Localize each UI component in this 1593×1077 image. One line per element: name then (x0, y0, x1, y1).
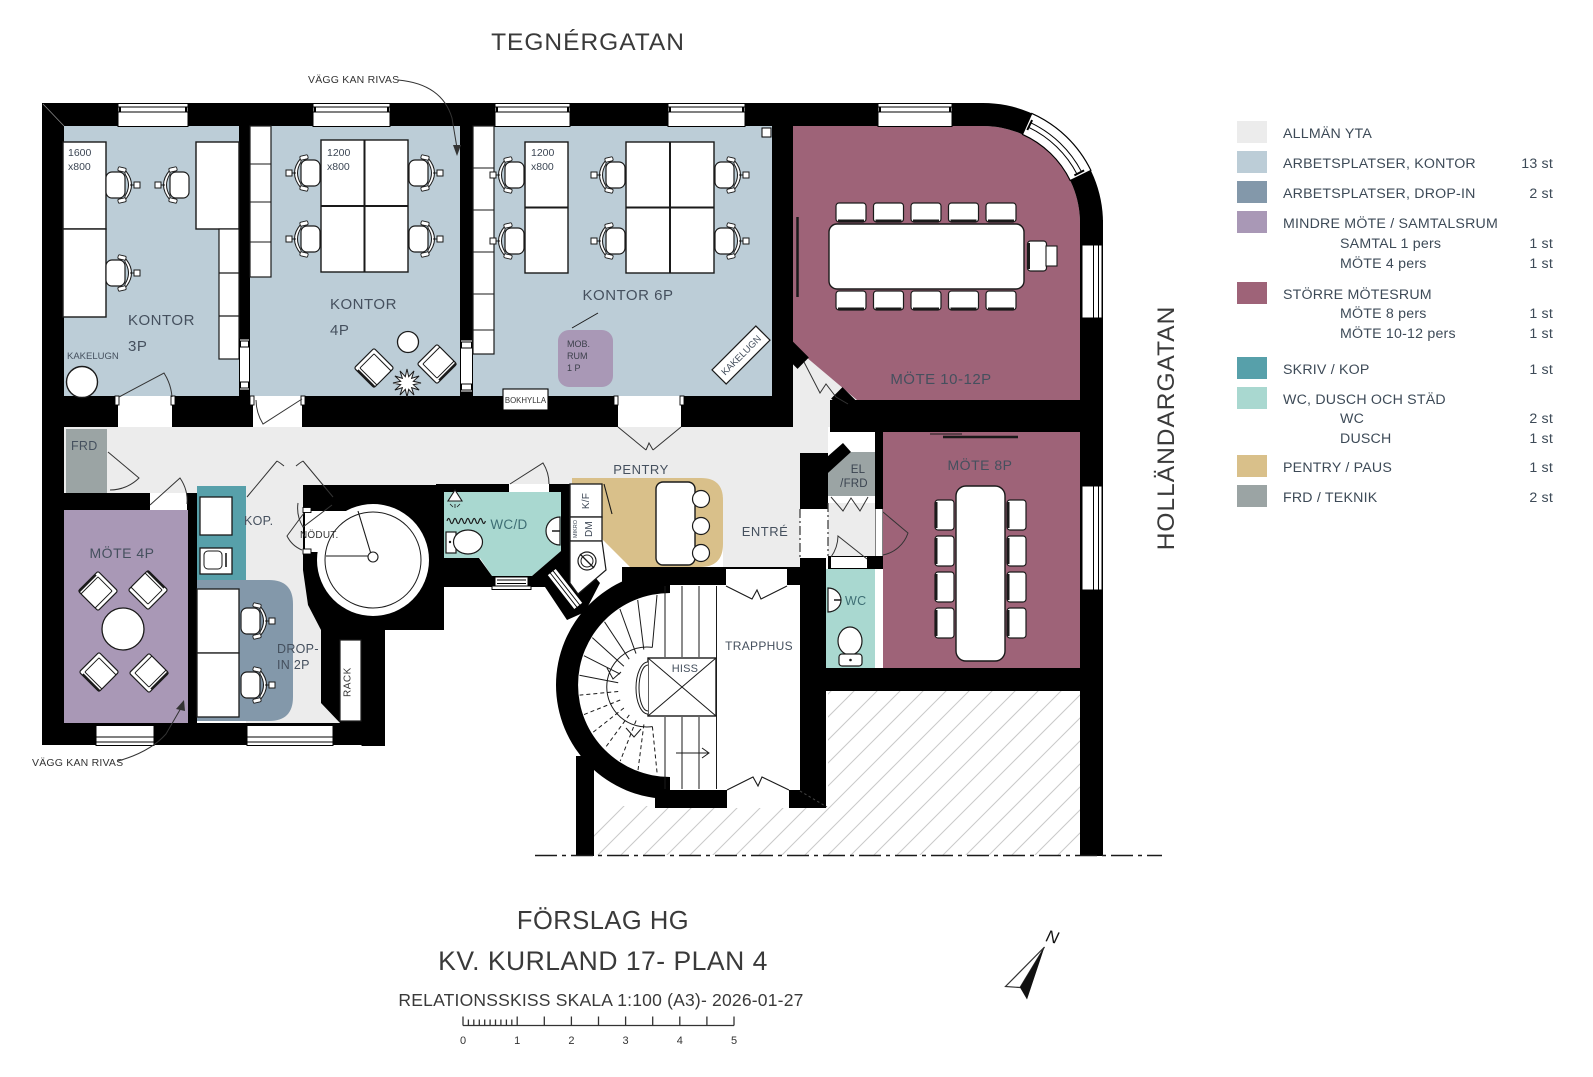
svg-text:PENTRY: PENTRY (613, 462, 669, 477)
svg-text:NÖDUT.: NÖDUT. (300, 529, 338, 541)
svg-text:MÖTE 10-12 pers: MÖTE 10-12 pers (1340, 324, 1456, 342)
svg-text:ENTRÉ: ENTRÉ (742, 524, 789, 539)
svg-text:/FRD: /FRD (840, 478, 868, 490)
svg-text:FRD: FRD (71, 439, 98, 453)
svg-text:SKRIV / KOP: SKRIV / KOP (1283, 362, 1370, 378)
svg-text:RUM: RUM (567, 351, 588, 361)
svg-text:1 st: 1 st (1529, 236, 1553, 252)
svg-text:WC/D: WC/D (490, 517, 527, 532)
svg-text:1 st: 1 st (1529, 256, 1553, 272)
svg-text:DUSCH: DUSCH (1340, 431, 1391, 447)
svg-text:RACK: RACK (343, 667, 354, 697)
svg-text:EL: EL (851, 464, 866, 476)
svg-text:MÖTE 4P: MÖTE 4P (90, 544, 155, 561)
svg-text:3P: 3P (128, 338, 147, 355)
svg-text:FRD / TEKNIK: FRD / TEKNIK (1283, 490, 1378, 506)
svg-text:KONTOR 6P: KONTOR 6P (583, 287, 674, 304)
svg-text:WC, DUSCH OCH STÄD: WC, DUSCH OCH STÄD (1283, 391, 1446, 408)
svg-text:MIKRO: MIKRO (573, 519, 579, 538)
svg-text:MÖTE 8P: MÖTE 8P (948, 456, 1013, 473)
svg-text:SAMTAL 1 pers: SAMTAL 1 pers (1340, 236, 1441, 252)
svg-text:FÖRSLAG HG: FÖRSLAG HG (517, 907, 689, 935)
svg-text:1200: 1200 (531, 147, 555, 159)
svg-text:MÖTE 10-12P: MÖTE 10-12P (890, 370, 991, 388)
svg-text:KOP.: KOP. (244, 514, 273, 528)
svg-text:ARBETSPLATSER, KONTOR: ARBETSPLATSER, KONTOR (1283, 156, 1476, 172)
svg-text:MOB.: MOB. (567, 339, 590, 349)
svg-text:1 P: 1 P (567, 363, 581, 373)
svg-text:K/F: K/F (581, 493, 592, 509)
svg-text:2: 2 (568, 1035, 574, 1047)
svg-text:TRAPPHUS: TRAPPHUS (725, 639, 793, 653)
svg-text:1 st: 1 st (1529, 431, 1553, 447)
svg-text:HOLLÄNDARGATAN: HOLLÄNDARGATAN (1153, 306, 1180, 551)
svg-text:DM: DM (584, 521, 595, 537)
svg-text:1 st: 1 st (1529, 362, 1553, 378)
svg-text:DROP-: DROP- (277, 642, 319, 656)
svg-text:3: 3 (623, 1035, 629, 1047)
svg-text:1200: 1200 (327, 147, 351, 159)
svg-text:STÖRRE MÖTESRUM: STÖRRE MÖTESRUM (1283, 285, 1432, 303)
svg-text:MÖTE 4 pers: MÖTE 4 pers (1340, 254, 1427, 272)
svg-text:HISS: HISS (672, 663, 698, 675)
svg-text:VÄGG KAN RIVAS: VÄGG KAN RIVAS (308, 74, 399, 86)
svg-text:4P: 4P (330, 322, 349, 339)
svg-text:KONTOR: KONTOR (330, 296, 397, 313)
svg-text:5: 5 (731, 1035, 737, 1047)
svg-text:1 st: 1 st (1529, 306, 1553, 322)
svg-text:13 st: 13 st (1521, 156, 1553, 172)
svg-text:WC: WC (845, 594, 866, 608)
svg-text:4: 4 (677, 1035, 683, 1047)
svg-text:PENTRY / PAUS: PENTRY / PAUS (1283, 460, 1392, 476)
svg-text:KAKELUGN: KAKELUGN (67, 351, 119, 362)
svg-text:0: 0 (460, 1035, 466, 1047)
svg-text:ALLMÄN YTA: ALLMÄN YTA (1283, 125, 1372, 142)
svg-text:KONTOR: KONTOR (128, 312, 195, 329)
svg-text:1 st: 1 st (1529, 460, 1553, 476)
svg-text:WC: WC (1340, 411, 1364, 427)
svg-text:x800: x800 (531, 161, 554, 173)
svg-text:MÖTE 8 pers: MÖTE 8 pers (1340, 304, 1427, 322)
svg-text:1: 1 (514, 1035, 520, 1047)
svg-text:ARBETSPLATSER, DROP-IN: ARBETSPLATSER, DROP-IN (1283, 186, 1476, 202)
svg-text:KV. KURLAND 17- PLAN 4: KV. KURLAND 17- PLAN 4 (438, 946, 768, 976)
svg-text:VÄGG KAN RIVAS: VÄGG KAN RIVAS (32, 757, 123, 769)
svg-text:2 st: 2 st (1529, 411, 1553, 427)
svg-text:BOKHYLLA: BOKHYLLA (505, 396, 547, 405)
svg-text:x800: x800 (68, 161, 91, 173)
svg-text:TEGNÉRGATAN: TEGNÉRGATAN (491, 29, 685, 56)
svg-text:1600: 1600 (68, 147, 92, 159)
svg-text:RELATIONSSKISS SKALA 1:100 (A3: RELATIONSSKISS SKALA 1:100 (A3)- 2026-01… (398, 990, 803, 1010)
svg-text:2 st: 2 st (1529, 490, 1553, 506)
svg-text:1 st: 1 st (1529, 326, 1553, 342)
svg-text:IN 2P: IN 2P (277, 658, 310, 672)
svg-text:x800: x800 (327, 161, 350, 173)
svg-text:2 st: 2 st (1529, 186, 1553, 202)
svg-text:MINDRE MÖTE / SAMTALSRUM: MINDRE MÖTE / SAMTALSRUM (1283, 214, 1498, 232)
